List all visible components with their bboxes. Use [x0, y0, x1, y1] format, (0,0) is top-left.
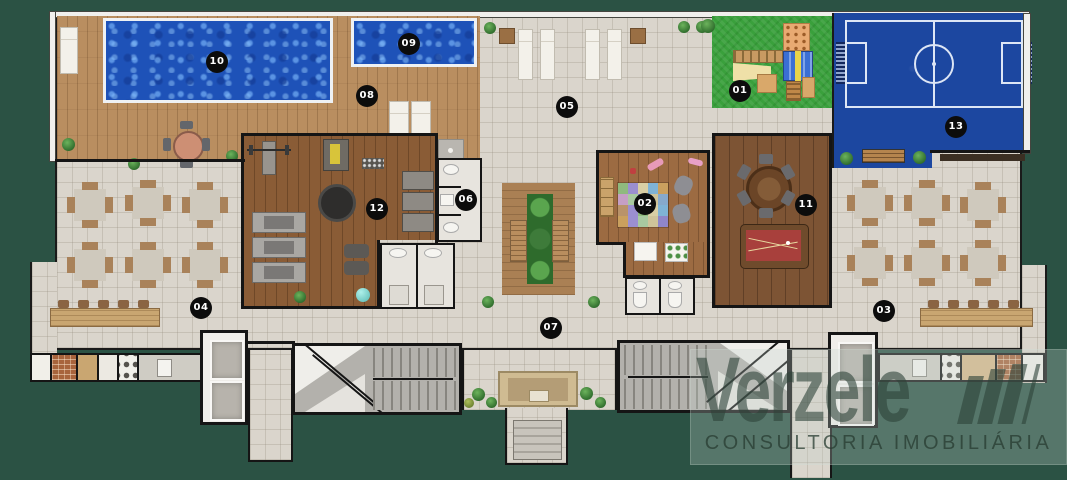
side-table: [630, 28, 646, 44]
dining-table-set: [847, 240, 893, 286]
court-center-dot: [932, 62, 936, 66]
bar-stool: [948, 300, 959, 308]
exercise-bike: [344, 261, 369, 275]
sideboard: [940, 154, 1025, 161]
toy-shelf: [600, 177, 614, 217]
planter: [840, 152, 853, 165]
sun-lounger: [585, 29, 600, 80]
weight-bench: [262, 141, 276, 175]
mat-tile: [658, 216, 668, 227]
sink: [424, 248, 442, 258]
dumbbell-rack: [362, 158, 384, 169]
treadmill-belt: [264, 216, 294, 229]
deck-bench: [510, 220, 527, 262]
shower-pan: [424, 285, 444, 305]
mat-tile: [658, 205, 668, 216]
play-ladder: [786, 81, 801, 101]
floor-plan: 01 02 03 04 05 06 07 08 09 10 11 12 13 V…: [0, 0, 1067, 480]
penalty-box-left: [845, 42, 867, 84]
mat-tile: [618, 216, 628, 227]
chair: [759, 154, 773, 164]
planter: [484, 22, 496, 34]
exercise-ball: [356, 288, 370, 302]
wall: [596, 150, 710, 153]
weight-machine: [402, 192, 434, 211]
dining-table-set: [125, 242, 171, 288]
area-badge-12: 12: [366, 198, 388, 220]
bar-stool: [58, 300, 69, 308]
bbq-grill: [52, 355, 78, 380]
barbell-plate: [285, 145, 289, 155]
play-platform: [757, 74, 777, 93]
toilet: [668, 292, 682, 308]
bar-counter: [920, 308, 1033, 327]
goal-left: [836, 42, 845, 84]
court-right-wall: [1023, 13, 1031, 154]
toilet: [443, 164, 459, 175]
plant: [62, 138, 75, 151]
deck-bench: [552, 220, 569, 262]
sun-lounger: [607, 29, 622, 80]
wall: [241, 306, 380, 309]
planter-strip: [527, 194, 553, 284]
play-ramp: [802, 77, 815, 98]
wood-counter: [78, 355, 99, 380]
planter: [913, 151, 926, 164]
entry-steps: [513, 420, 562, 460]
watermark-brand: Verzele: [696, 344, 909, 436]
prep-counter: [99, 355, 119, 380]
round-dining-table: [173, 131, 204, 162]
wall: [416, 243, 418, 309]
treadmill-belt: [264, 266, 294, 279]
wall: [241, 133, 438, 136]
area-badge-06: 06: [455, 189, 477, 211]
dining-table-set: [182, 242, 228, 288]
barbell-plate: [249, 145, 253, 155]
dining-table-set: [182, 182, 228, 228]
wall-court-bottom: [930, 150, 1030, 153]
mat-tile: [648, 216, 658, 227]
bar-stool: [118, 300, 129, 308]
dining-table-set: [125, 180, 171, 226]
plant: [486, 397, 497, 408]
sun-lounger: [60, 27, 78, 74]
plant: [595, 397, 606, 408]
kitchen-strip-left: [30, 353, 202, 382]
mat-tile: [648, 183, 658, 194]
wall: [596, 150, 599, 245]
area-badge-08: 08: [356, 85, 378, 107]
weight-machine: [402, 213, 434, 232]
dining-table-set: [67, 242, 113, 288]
watermark-tagline: CONSULTORIA IMOBILIÁRIA: [690, 432, 1067, 455]
wall-hall-bottom: [243, 341, 295, 344]
kids-table: [634, 242, 657, 261]
monkey-bars: [733, 50, 787, 63]
sink: [633, 281, 647, 290]
elevator-cab: [210, 340, 244, 380]
dining-table-set: [847, 180, 893, 226]
mat-tile: [638, 216, 648, 227]
fountain-statue: [529, 390, 549, 402]
climbing-wall: [783, 23, 810, 51]
exercise-bike: [344, 244, 369, 258]
treadmill-belt: [264, 241, 294, 254]
penalty-box-right: [1001, 42, 1023, 84]
area-badge-10: 10: [206, 51, 228, 73]
bar-counter: [50, 308, 160, 327]
stair-flight: [373, 348, 459, 377]
plant: [482, 296, 494, 308]
stove: [119, 355, 139, 380]
gym-rug: [318, 184, 356, 222]
bar-stool: [138, 300, 149, 308]
area-badge-03: 03: [873, 300, 895, 322]
dining-table-set: [904, 240, 950, 286]
area-badge-13: 13: [945, 116, 967, 138]
kitchen-sink: [157, 359, 172, 377]
bar-stool: [1008, 300, 1019, 308]
dining-table-set: [960, 182, 1006, 228]
dining-table-set: [67, 182, 113, 228]
dining-table-set: [904, 180, 950, 226]
sun-lounger: [518, 29, 533, 80]
bar-stool: [988, 300, 999, 308]
corridor-left-entry: [248, 350, 293, 462]
billiard-ball: [786, 241, 790, 245]
mat-tile: [628, 216, 638, 227]
bar-stool: [928, 300, 939, 308]
plant: [588, 296, 600, 308]
bar-stool: [98, 300, 109, 308]
shower-drain: [448, 148, 453, 153]
canopy-stripe: [795, 51, 801, 81]
area-badge-07: 07: [540, 317, 562, 339]
side-table: [499, 28, 515, 44]
plant: [294, 291, 306, 303]
plant: [472, 388, 485, 401]
wall: [707, 150, 710, 278]
mat-tile: [658, 194, 668, 205]
parapet-left: [49, 11, 56, 162]
storage-room: [32, 355, 52, 380]
planter: [678, 21, 690, 33]
chair: [759, 208, 773, 218]
plant: [464, 398, 474, 408]
dining-chair: [202, 138, 210, 151]
mat-tile: [618, 194, 628, 205]
wall: [439, 214, 461, 216]
bar-stool: [968, 300, 979, 308]
dining-chair: [180, 121, 193, 129]
area-badge-01: 01: [729, 80, 751, 102]
weight-machine: [402, 171, 434, 190]
garden-bench: [862, 149, 905, 163]
sun-lounger: [540, 29, 555, 80]
watermark-logo-icon: [963, 364, 1055, 424]
wall: [596, 242, 626, 245]
mat-tile: [618, 205, 628, 216]
toilet: [633, 292, 647, 308]
elevator-cab: [210, 381, 244, 421]
kids-table: [665, 243, 688, 262]
area-badge-09: 09: [398, 33, 420, 55]
wall: [659, 277, 661, 315]
dining-chair: [163, 138, 171, 151]
mat-tile: [618, 183, 628, 194]
stair-flight: [373, 381, 459, 410]
area-badge-04: 04: [190, 297, 212, 319]
sink: [389, 248, 407, 258]
plant: [580, 387, 593, 400]
kitchen-counter: [139, 355, 200, 380]
toilet: [443, 222, 459, 233]
wall: [439, 186, 461, 188]
mat-tile: [628, 183, 638, 194]
toy: [630, 168, 636, 174]
area-badge-02: 02: [634, 193, 656, 215]
area-badge-05: 05: [556, 96, 578, 118]
mat-tile: [658, 183, 668, 194]
bar-stool: [78, 300, 89, 308]
dining-table-set: [960, 240, 1006, 286]
shower-pan: [389, 285, 409, 305]
wall: [623, 242, 626, 278]
area-badge-11: 11: [795, 194, 817, 216]
wall-terrace-top: [55, 159, 245, 162]
stair-rail: [373, 378, 453, 380]
squat-rack-pad: [330, 144, 340, 164]
sink: [440, 194, 454, 206]
sink: [668, 281, 682, 290]
plant: [701, 19, 715, 33]
stairwell-left: [292, 343, 462, 415]
